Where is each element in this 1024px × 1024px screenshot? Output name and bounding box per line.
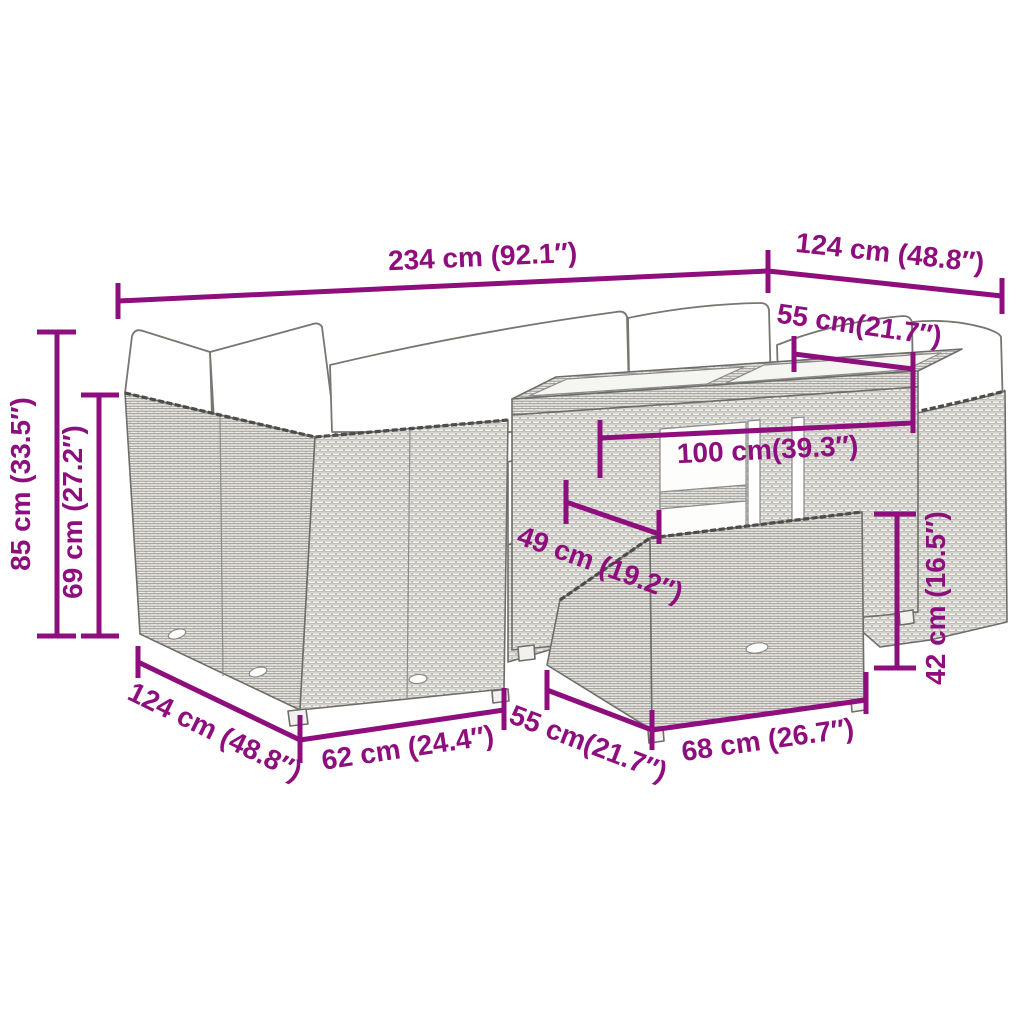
dim-ottoman-height-label: 42 cm (16.5″) [920,511,951,685]
ottoman-front-face [650,512,864,730]
dim-total-height-label: 85 cm (33.5″) [5,397,36,571]
left-sofa-front-panel [300,420,508,710]
dim-overall-width-label: 234 cm (92.1″) [387,237,578,277]
diagram-canvas: 234 cm (92.1″) 124 cm (48.8″) 55 cm(21.7… [0,0,1024,1024]
table-foot [899,610,914,625]
table-foot [518,645,535,661]
dim-overall-width: 234 cm (92.1″) [118,237,768,319]
dim-depth-right-label: 124 cm (48.8″) [794,227,986,278]
left-sofa [125,393,556,726]
dim-backrest-height: 69 cm (27.2″) [57,395,119,636]
dimension-diagram-svg: 234 cm (92.1″) 124 cm (48.8″) 55 cm(21.7… [0,0,1024,1024]
dim-backrest-height-label: 69 cm (27.2″) [57,425,88,599]
dim-left-seat-width-label: 62 cm (24.4″) [319,719,495,775]
